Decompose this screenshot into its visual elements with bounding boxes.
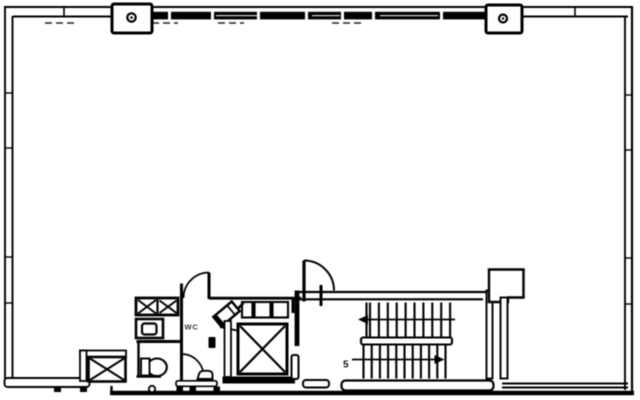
svg-text:5: 5 [343, 360, 349, 371]
svg-text:WC: WC [185, 323, 199, 332]
